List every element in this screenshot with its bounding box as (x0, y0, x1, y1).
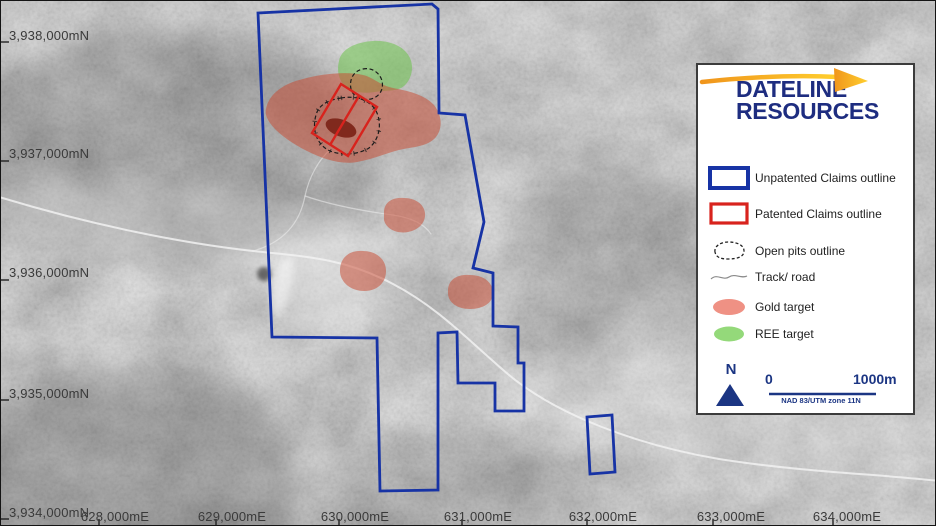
gold-target-blob-middle (384, 198, 425, 233)
map-figure: 3,938,000mN 3,937,000mN 3,936,000mN 3,93… (0, 0, 936, 526)
gold-target-blob-east (448, 275, 493, 309)
legend-item-patented-claims: Patented Claims outline (707, 201, 882, 227)
brand-arrow-icon (698, 65, 872, 99)
legend-item-ree-target: REE target (707, 321, 814, 347)
legend-item-label: Patented Claims outline (755, 207, 882, 221)
legend-item-unpatented-claims: Unpatented Claims outline (707, 165, 896, 191)
legend-item-label: Gold target (755, 300, 814, 314)
legend-item-open-pits: Open pits outline (707, 238, 845, 264)
legend-item-label: Unpatented Claims outline (755, 171, 896, 185)
legend-item-track-road: Track/ road (707, 264, 815, 290)
north-label: N (719, 361, 743, 378)
legend-item-label: REE target (755, 327, 814, 341)
north-arrow-icon (716, 384, 744, 406)
gold-target-blob-west (340, 251, 386, 291)
legend-item-label: Track/ road (755, 270, 815, 284)
scale-distance-label: 1000m (853, 371, 897, 387)
legend-item-label: Open pits outline (755, 244, 845, 258)
brand-line2: RESOURCES (736, 100, 879, 122)
legend-item-gold-target: Gold target (707, 294, 814, 320)
datum-label: NAD 83/UTM zone 11N (767, 396, 875, 405)
scale-zero-label: 0 (765, 371, 773, 387)
unpatented-claims-outline-detached (587, 415, 615, 474)
